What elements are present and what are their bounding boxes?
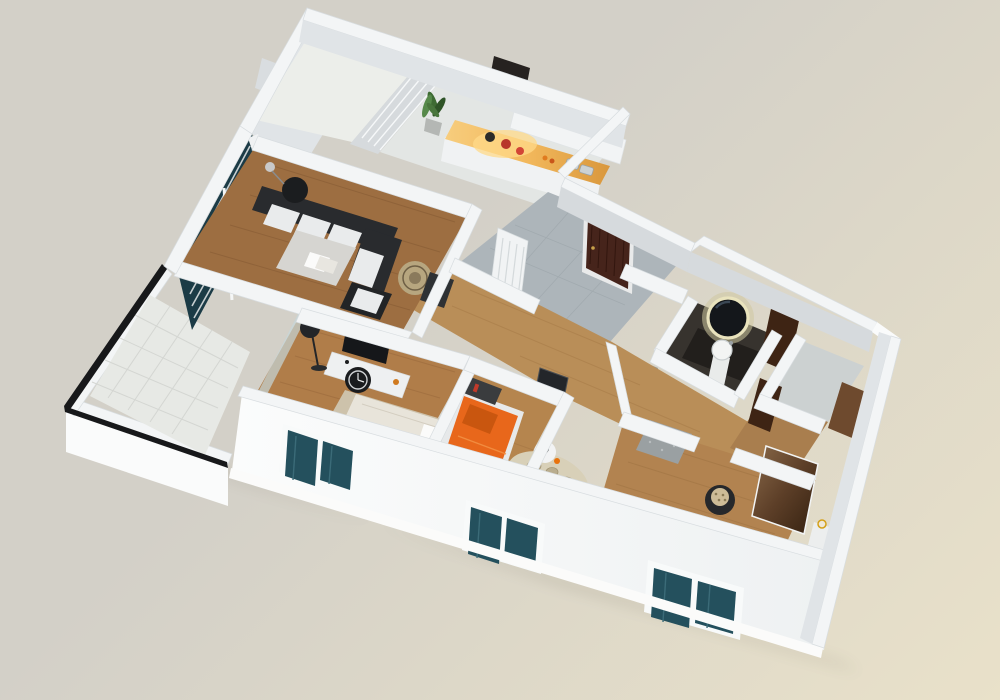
tv-remote <box>345 360 349 364</box>
spice-jar <box>550 159 555 164</box>
black-side-table <box>282 177 308 203</box>
orange-cup <box>554 458 560 464</box>
round-backlit-mirror <box>705 295 751 341</box>
floor-plan-render <box>0 0 1000 700</box>
round-ottoman <box>705 485 735 515</box>
spice-jar <box>543 156 548 161</box>
cooking-pot <box>501 139 511 149</box>
balcony <box>64 264 250 506</box>
decor-vase <box>393 379 399 385</box>
candle-holder <box>818 520 826 528</box>
door-knob <box>591 246 595 250</box>
cooking-pot-dark <box>485 132 495 142</box>
faucet <box>729 341 733 345</box>
wall-clock <box>345 367 371 393</box>
table-lamp <box>265 162 275 172</box>
lamp-base <box>311 365 327 371</box>
cooking-pot <box>516 147 524 155</box>
floor-plan-scene <box>0 0 1000 700</box>
window-pane <box>285 430 318 486</box>
